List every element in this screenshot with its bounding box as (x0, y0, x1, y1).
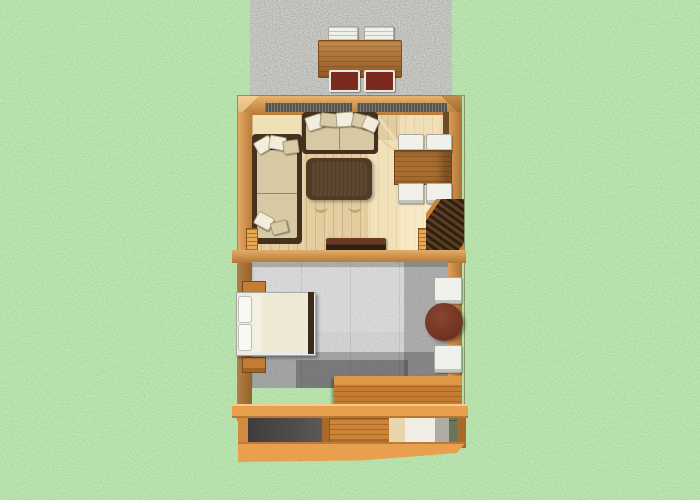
lower-appliance (405, 418, 449, 443)
bedroom-chair-top (434, 277, 462, 304)
cutaway-back-wall (248, 418, 322, 442)
cutaway-shadow-right (449, 418, 457, 446)
bedroom-chair-bottom (434, 345, 462, 373)
window-right (357, 103, 447, 112)
loveseat-cushion-seam (257, 193, 297, 194)
coffee-table-leg (314, 199, 328, 213)
lower-floor-wood (389, 418, 405, 443)
window-left (265, 103, 352, 112)
deck-edge (232, 404, 468, 418)
patio-chair-bottom-left (329, 70, 360, 92)
bed-pillow (238, 324, 252, 351)
round-table (425, 303, 463, 341)
loveseat-pillow (282, 139, 300, 155)
bed-footboard (308, 292, 314, 354)
coffee-table-leg (348, 199, 362, 213)
storage-cabinet (334, 376, 462, 406)
sofa-cushion-seam (339, 124, 340, 150)
dining-table (394, 150, 452, 185)
bed-pillow (238, 296, 252, 323)
coffee-table-top (311, 162, 367, 196)
nightstand-bottom (242, 357, 266, 373)
stair-treads (426, 199, 464, 253)
patio-chair-bottom-right (364, 70, 395, 92)
dining-chair (398, 183, 424, 204)
bed-sheet-fold (252, 294, 262, 352)
floorplan-render (0, 0, 700, 500)
staircase (426, 199, 464, 253)
